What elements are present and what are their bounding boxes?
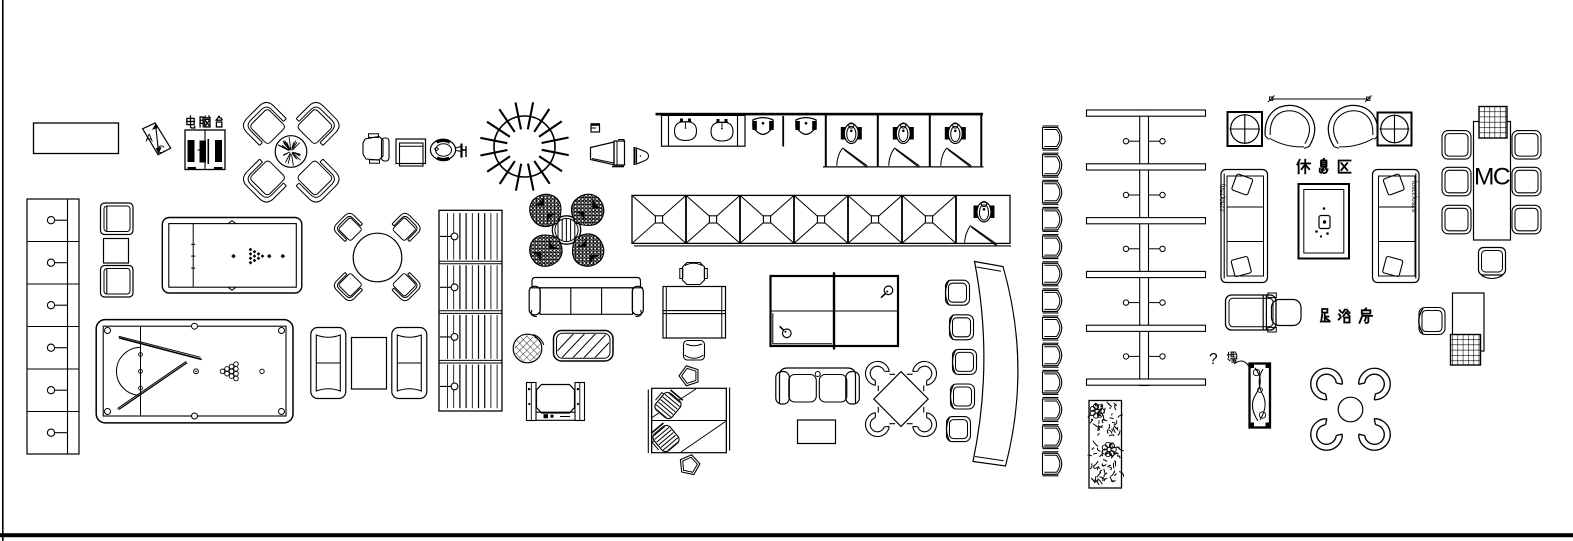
svg-text:2250(750): 2250(750) (1220, 184, 1227, 212)
svg-text:5750(2250): 5750(2250) (1412, 180, 1419, 212)
svg-text:A: A (146, 133, 154, 145)
svg-text:?: ? (1209, 351, 1218, 368)
svg-text:C: C (157, 144, 165, 156)
svg-text:MC: MC (1474, 164, 1510, 191)
